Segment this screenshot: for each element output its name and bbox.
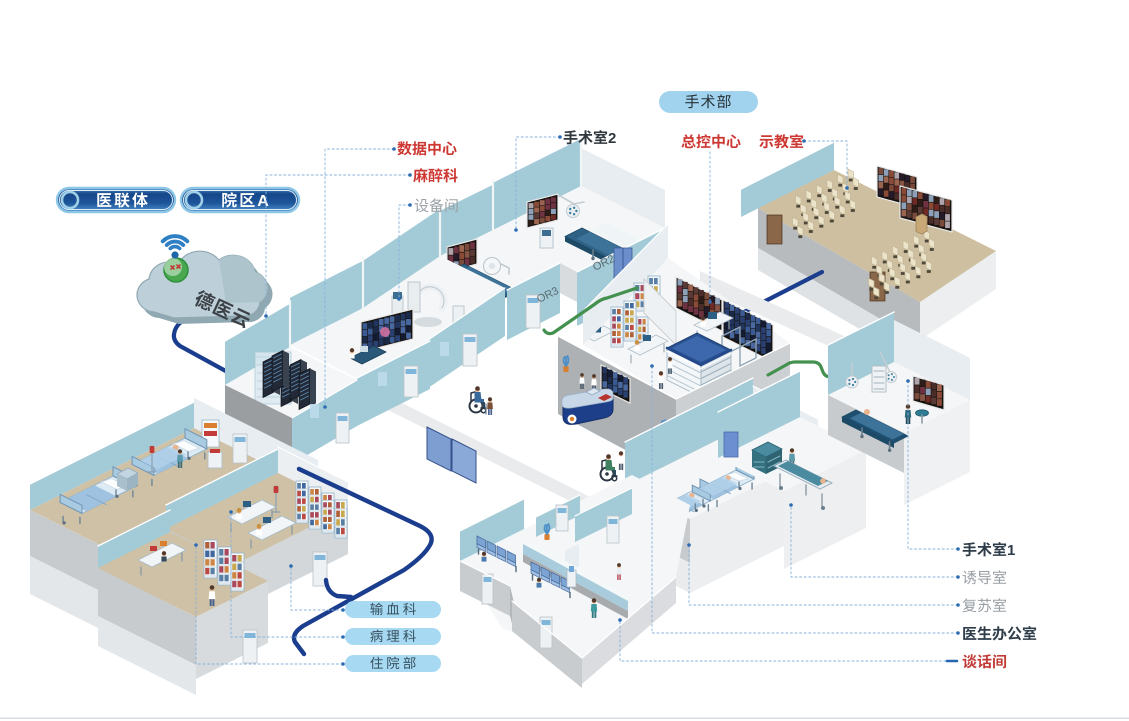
svg-text:2: 2	[608, 130, 616, 147]
svg-text:1: 1	[1007, 542, 1015, 559]
svg-text:A: A	[257, 193, 269, 210]
